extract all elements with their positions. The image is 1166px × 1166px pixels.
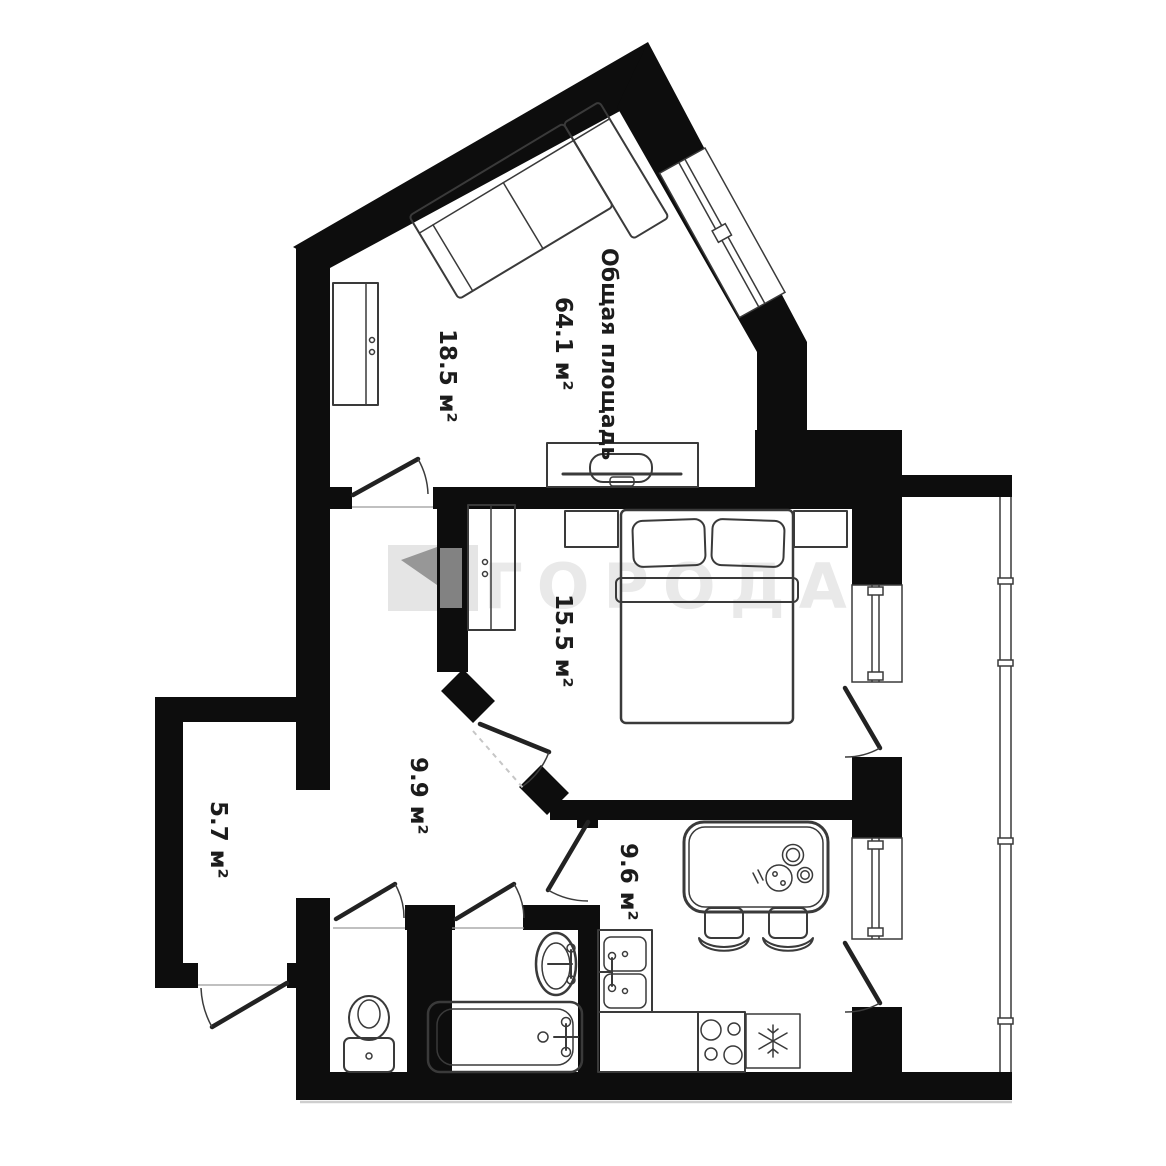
wall-balcony-bottom-right [287, 963, 330, 988]
wall-balcony-left [155, 697, 183, 988]
window-handle-icon [868, 587, 883, 595]
wall-balcony-bottom-left [155, 963, 198, 988]
total-area-value: 64.1 м² [550, 297, 576, 391]
wall-right-seg2 [852, 757, 902, 838]
window-kitchen [852, 838, 902, 939]
wall-right-seg1 [852, 455, 902, 587]
watermark-text: ГОРОДА [483, 550, 861, 623]
label-balcony-area: 5.7 м² [205, 801, 231, 879]
label-kitchen-area: 9.6 м² [615, 843, 641, 921]
label-hallway-area: 9.9 м² [405, 757, 431, 835]
wall-wc-bath-divider [407, 905, 452, 1072]
wall-kitchen-divider [550, 800, 852, 820]
window-handle-icon [868, 928, 883, 936]
floorplan-drawing: ГОРОДА [0, 0, 1166, 1166]
wall-right-balcony-top [902, 475, 1012, 497]
window-bedroom [852, 585, 902, 682]
wall-right-seg3 [852, 1007, 902, 1072]
window-handle-icon [868, 841, 883, 849]
total-area-title: Общая площадь [596, 248, 621, 460]
window-handle-icon [868, 672, 883, 680]
floorplan-page: ГОРОДА [0, 0, 1166, 1166]
wall-bottom [296, 1072, 1012, 1100]
label-bedroom-area: 15.5 м² [550, 594, 576, 688]
wall-left-lower [296, 898, 330, 1100]
wall-diag-seg2 [530, 776, 558, 804]
label-living-area: 18.5 м² [434, 329, 460, 423]
wall-bath-top [523, 905, 600, 930]
wall-livingroom-stub [330, 487, 352, 509]
